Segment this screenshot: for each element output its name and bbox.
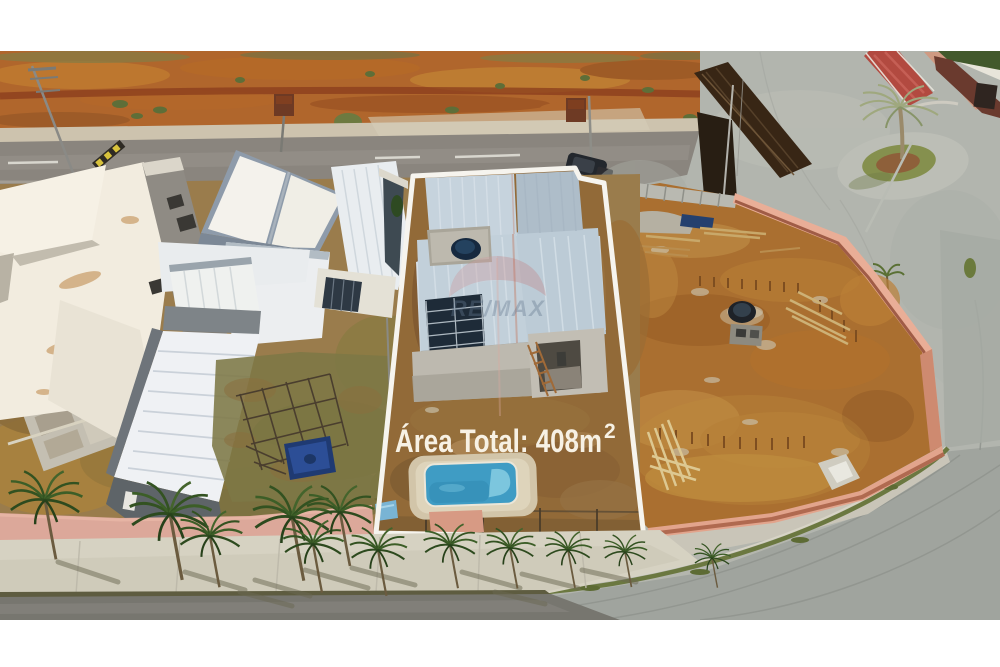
svg-text:Área Total: 408m: Área Total: 408m <box>395 423 602 459</box>
svg-text:2: 2 <box>604 420 616 443</box>
